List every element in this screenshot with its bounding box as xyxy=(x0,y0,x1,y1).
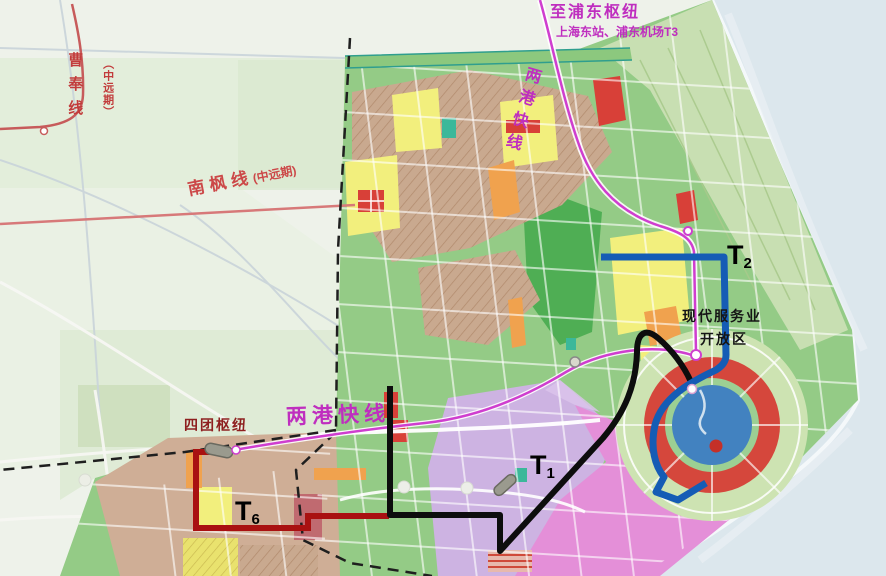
map-graphics xyxy=(0,0,886,576)
t1-label: T1 xyxy=(530,450,555,482)
express-station xyxy=(684,227,692,235)
situan-hub-label: 四团枢纽 xyxy=(184,417,248,433)
express-line-mid-label: 两港快线 xyxy=(286,402,391,430)
modern-service-label-2: 开放区 xyxy=(700,331,748,347)
road-junction xyxy=(79,474,91,486)
planning-map: 至浦东枢纽 上海东站、浦东机场T3 两港快线 曹奉线 （中远期） 南枫线(中远期… xyxy=(0,0,886,576)
road-junction xyxy=(461,482,473,494)
t2-label: T2 xyxy=(727,240,752,272)
caofeng-line-label: 曹奉线 xyxy=(66,52,83,124)
caofeng-phase-label: （中远期） xyxy=(101,58,114,118)
road-junction xyxy=(398,481,410,493)
t6-label: T6 xyxy=(235,496,260,528)
dest-hub-label: 至浦东枢纽 xyxy=(550,4,640,22)
express-station xyxy=(570,357,580,367)
dest-sub-label: 上海东站、浦东机场T3 xyxy=(556,26,678,40)
lake-terminal-station xyxy=(691,350,701,360)
modern-service-label-1: 现代服务业 xyxy=(682,308,762,324)
t1-terminal-station xyxy=(688,385,697,394)
dishui-lake xyxy=(616,329,808,521)
lake-island xyxy=(710,440,723,453)
